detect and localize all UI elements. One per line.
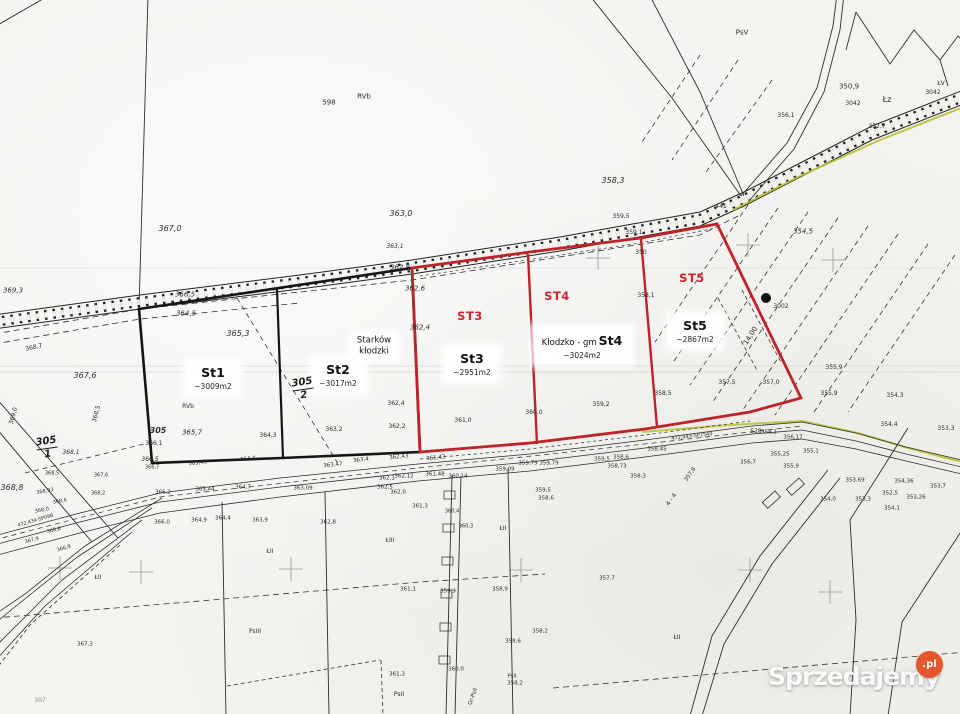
elevation-label: 358,2 <box>532 629 548 635</box>
watermark-brand: Sprzedajemy <box>768 662 939 691</box>
plot-st2-label: St2 ~3017m2 <box>311 359 364 391</box>
elevation-label: 358,3 <box>630 474 646 480</box>
elevation-label: 358,73 <box>607 464 626 470</box>
plot-st1-code: St1 <box>194 365 231 380</box>
elevation-label: 352,7 <box>868 124 885 130</box>
elevation-label: 359,2 <box>592 402 609 408</box>
elevation-label: 352,5 <box>882 491 898 497</box>
benchmark-label: 472,434-SP09B <box>18 515 55 530</box>
elevation-label: 357,7 <box>599 576 615 582</box>
elevation-label: 354,1 <box>884 506 900 512</box>
elevation-label: 365,43 <box>188 460 208 467</box>
village-label: Starków kłodzki <box>351 334 397 361</box>
elevation-label: 363,4 <box>353 457 369 464</box>
plot-st2-code: St2 <box>319 362 356 377</box>
elevation-label: 353,3 <box>937 426 954 432</box>
elevation-label: 354,5 <box>793 229 813 236</box>
elevation-label: 358,5 <box>654 391 671 397</box>
plot-st5-code: St5 <box>676 318 713 333</box>
elevation-label: 364,7 <box>235 485 251 491</box>
elevation-label: 362,8 <box>320 520 336 526</box>
elevation-label: 353,7 <box>930 484 946 490</box>
elevation-label: 362,4 <box>387 401 404 407</box>
elevation-label: 362,6 <box>405 286 425 293</box>
elevation-label: 365,44 <box>195 487 214 493</box>
elevation-label: 368,5 <box>92 405 102 423</box>
plot-st1-area: ~3009m2 <box>194 382 231 391</box>
elevation-label: 356,1 <box>777 113 794 119</box>
cadastral-map: 367,0363,0358,3354,5PsV350,93042ŁzŁV3042… <box>0 0 960 714</box>
elevation-label: 369,3 <box>3 288 23 295</box>
elevation-label: 362,12 <box>394 474 413 480</box>
elevation-label: 364,5 <box>176 311 196 318</box>
elevation-label: 368,5 <box>45 472 59 477</box>
parcel-number: 528 <box>750 429 761 435</box>
parcel-fraction-305-1: 305 1 <box>35 435 59 462</box>
plot-st1-label: St1 ~3009m2 <box>186 362 239 394</box>
elevation-label: 359,9 <box>440 589 456 595</box>
elevation-label: 364,4 <box>240 456 256 463</box>
elevation-label: 360,0 <box>448 667 464 673</box>
elevation-label: 362,2 <box>388 424 405 430</box>
elevation-label: 353,3 <box>855 497 871 503</box>
elevation-label: 354,0 <box>820 497 836 503</box>
elevation-label: 366,7 <box>145 466 159 471</box>
elevation-label: 367,9 <box>24 537 39 545</box>
plot-st5-area: ~2867m2 <box>676 335 713 344</box>
elevation-label: 353,69 <box>845 478 864 484</box>
elevation-label: 354,3 <box>886 393 903 399</box>
benchmark-label: 472,443-SP1540 <box>671 432 713 442</box>
elevation-label: 355,25 <box>770 452 789 458</box>
elevation-label: 355,9 <box>783 464 799 470</box>
elevation-label: 357,8 <box>684 467 698 483</box>
elevation-label: 366,2 <box>155 490 171 496</box>
plot-st4-area: ~3024m2 <box>542 351 623 360</box>
elevation-label: 355,9 <box>820 391 837 397</box>
parcel-number: 307 <box>34 698 45 704</box>
plot-st3-label: St3 ~2951m2 <box>445 348 498 380</box>
land-class-label: ŁV <box>937 81 944 87</box>
elevation-label: 359,5 <box>594 457 610 463</box>
plot-st3-area: ~2951m2 <box>453 368 490 377</box>
parcel-number: 350 <box>635 250 646 256</box>
elevation-label: 364,4 <box>215 516 231 522</box>
land-class-label: PsV <box>736 30 749 37</box>
elevation-label: 367,6 <box>94 474 108 479</box>
land-class-label: PsII <box>507 674 516 680</box>
elevation-label: 357,0 <box>762 380 779 386</box>
elevation-label: 358,45 <box>647 447 666 453</box>
elevation-label: 367,0 <box>159 225 182 233</box>
elevation-label: 359,79 <box>539 461 558 467</box>
elevation-label: 362,0 <box>390 490 406 496</box>
elevation-label: 363,1 <box>386 244 403 250</box>
watermark-tld-badge: .pl <box>916 651 943 678</box>
elevation-label: 358,6 <box>613 455 629 461</box>
land-class-label: PsII <box>394 692 404 698</box>
land-class-label: PsIII <box>249 629 261 635</box>
elevation-label: 366,5 <box>175 292 195 299</box>
plot-st4-code: St4 <box>599 333 623 348</box>
parcel-number: 305 <box>150 427 167 435</box>
elevation-label: 361,3 <box>389 672 405 678</box>
elevation-label: 358,9 <box>492 587 508 593</box>
elevation-label: 358,2 <box>507 681 523 687</box>
elevation-label: 361,0 <box>454 418 471 424</box>
plot-st3-header: ST3 <box>457 309 483 323</box>
land-class-label: ŁII <box>500 526 507 532</box>
elevation-label: 362,1 <box>379 476 395 482</box>
parcel-number: 441 <box>715 204 726 210</box>
elevation-label: 361,43 <box>426 455 446 462</box>
elevation-label: 360,4 <box>445 510 459 515</box>
parcel-fraction-305-2: 305 2 <box>291 376 315 403</box>
elevation-label: 358,6 <box>538 496 554 502</box>
elevation-label: 368,6 <box>53 498 68 505</box>
land-class-label: ŁII <box>267 549 274 555</box>
elevation-label: 364,9 <box>191 518 207 524</box>
village-line2: kłodzki <box>357 347 391 358</box>
elevation-label: 368,1 <box>62 450 79 456</box>
elevation-label: 368,8 <box>46 527 61 535</box>
elevation-label: 362,4 <box>410 325 430 332</box>
elevation-label: 353,26 <box>906 495 925 501</box>
elevation-label: 355,1 <box>803 449 819 455</box>
elevation-label: 4 - 4 <box>666 493 679 508</box>
plot-st5-header: ST5 <box>679 271 705 285</box>
plot-st3-code: St3 <box>453 351 490 366</box>
elevation-label: 360,14 <box>448 474 467 480</box>
fraction-numerator: 305 <box>35 435 57 449</box>
elevation-label: 363,9 <box>252 518 268 524</box>
plot-st5-label: St5 ~2867m2 <box>668 315 721 347</box>
land-class-label: Gr-PsII <box>468 688 479 706</box>
land-class-label: RVb <box>182 404 194 410</box>
parcel-number: 3042 <box>845 101 860 107</box>
plot-st4-header: ST4 <box>544 289 570 303</box>
elevation-label: 363,09 <box>293 486 312 492</box>
parcel-number: 3042 <box>925 90 940 96</box>
elevation-label: 368,2 <box>91 492 105 497</box>
elevation-label: 358,1 <box>761 430 777 436</box>
elevation-label: 359,5 <box>535 488 551 494</box>
plot-st4-label: Kłodzko - gmSt4 ~3024m2 <box>534 327 631 363</box>
elevation-label: 365,7 <box>182 430 202 437</box>
elevation-label: 368,8 <box>1 484 24 492</box>
elevation-label: 360,0 <box>525 410 542 416</box>
elevation-label: 14,00 <box>743 326 760 347</box>
elevation-label: 358,1 <box>637 293 654 299</box>
land-class-label: ŁIII <box>386 538 395 544</box>
elevation-label: 362,8 <box>390 265 410 272</box>
elevation-label: 360,3 <box>459 525 473 530</box>
elevation-label: 359,1 <box>625 230 642 236</box>
elevation-label: 363,47 <box>323 462 343 469</box>
elevation-label: 366,0 <box>154 520 170 526</box>
land-class-label: ŁII <box>674 635 681 641</box>
elevation-label: 361,3 <box>412 504 428 510</box>
elevation-label: 358,3 <box>602 177 625 185</box>
elevation-label: 354,4 <box>880 422 897 428</box>
elevation-label: 359,09 <box>495 467 514 473</box>
plot-st2-area: ~3017m2 <box>319 379 356 388</box>
elevation-label: 364,3 <box>259 433 276 439</box>
elevation-label: 355,9 <box>825 365 842 371</box>
elevation-label: 359,5 <box>612 214 629 220</box>
elevation-label: 369,0 <box>9 407 19 425</box>
elevation-label: 350,9 <box>839 84 859 91</box>
fraction-numerator: 305 <box>291 376 313 390</box>
parcel-number: 598 <box>322 100 335 107</box>
elevation-label: 368,0 <box>35 507 50 514</box>
elevation-label: 357,5 <box>718 380 735 386</box>
elevation-label: 358,6 <box>505 639 521 645</box>
elevation-label: 362,43 <box>389 454 409 461</box>
elevation-label: 367,6 <box>74 372 97 380</box>
elevation-label: 354,36 <box>894 479 913 485</box>
elevation-label: 368,93 <box>36 488 54 496</box>
elevation-label: 365,3 <box>227 330 250 338</box>
elevation-label: 361,1 <box>400 587 416 593</box>
elevation-label: 356,17 <box>783 435 802 441</box>
land-class-label: ŁII <box>95 575 102 581</box>
elevation-label: 366,9 <box>56 545 71 554</box>
land-class-label: Łz <box>883 96 892 104</box>
commune-label: Kłodzko - gm <box>542 338 597 348</box>
elevation-label: 356,7 <box>740 460 756 466</box>
elevation-label: 363,2 <box>325 427 342 433</box>
elevation-label: 366,5 <box>141 457 158 463</box>
elevation-label: 359,79 <box>518 461 537 467</box>
land-class-label: RVb <box>357 94 371 101</box>
elevation-label: 367,3 <box>77 642 93 648</box>
elevation-label: 361,48 <box>425 472 444 478</box>
elevation-label: 366,1 <box>145 441 162 447</box>
elevation-label: 363,0 <box>390 210 413 218</box>
parcel-number: 3002 <box>773 304 788 310</box>
village-line1: Starków <box>357 336 391 347</box>
elevation-label: 368,7 <box>25 343 43 352</box>
